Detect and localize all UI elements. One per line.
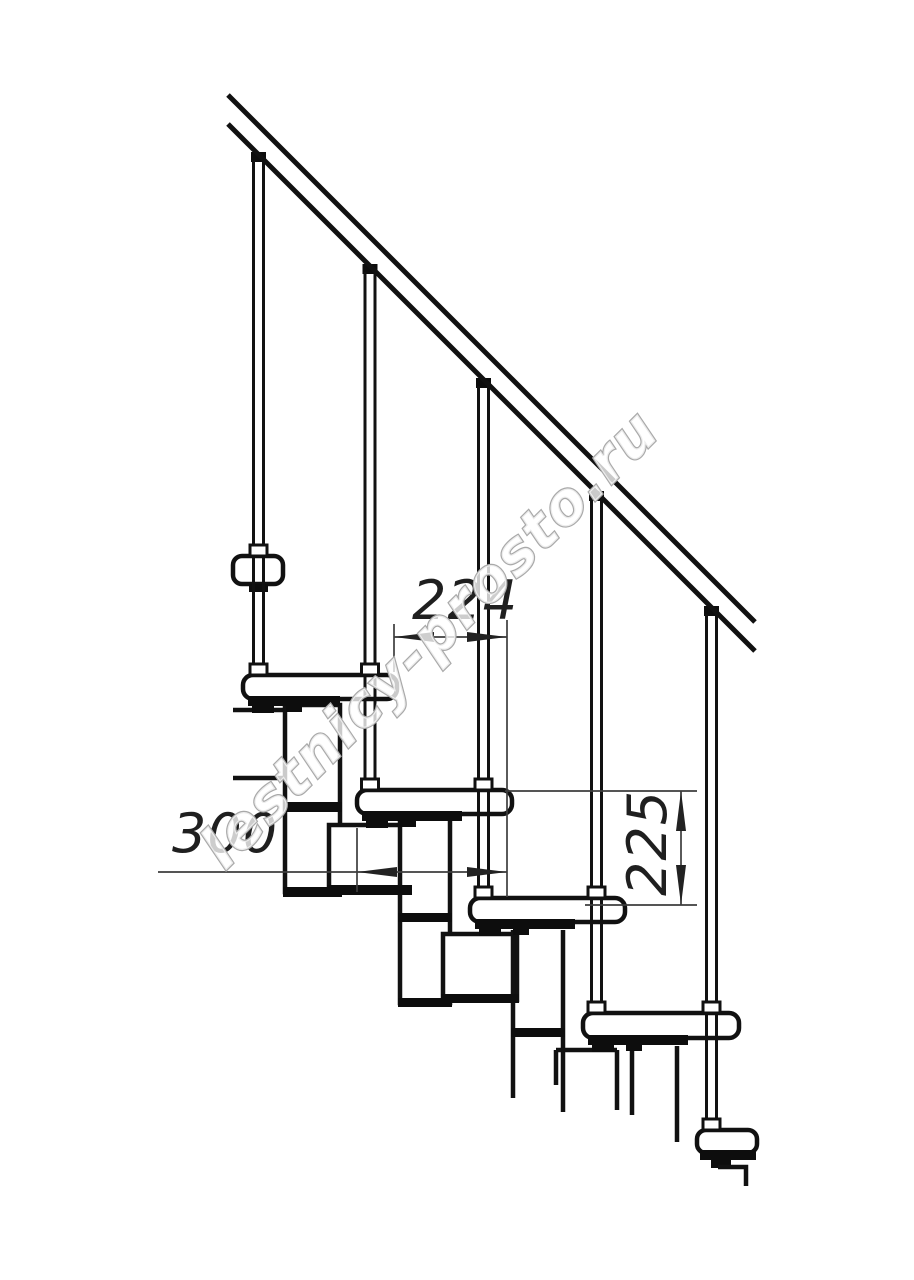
baluster: [703, 606, 720, 1130]
bottom-step-break: [718, 1167, 746, 1186]
collar: [588, 1002, 605, 1013]
collar: [475, 779, 492, 790]
collar: [362, 779, 379, 790]
collar: [588, 887, 605, 898]
collar: [250, 545, 267, 556]
baluster: [588, 491, 605, 1013]
collar: [703, 1119, 720, 1130]
collar: [250, 664, 267, 675]
staircase-drawing: 224 300 225 lestnicy-prosto.ru: [0, 0, 914, 1280]
collar: [475, 887, 492, 898]
tread-partial: [697, 1130, 757, 1153]
baluster: [250, 152, 267, 675]
collar: [703, 1002, 720, 1013]
tread-fragment: [233, 556, 283, 584]
staircase-drawing-page: 224 300 225 lestnicy-prosto.ru: [0, 0, 914, 1280]
dimension-rise-label: 225: [616, 790, 679, 896]
module-box: [443, 934, 517, 1000]
module-box-broken: [632, 1046, 677, 1142]
